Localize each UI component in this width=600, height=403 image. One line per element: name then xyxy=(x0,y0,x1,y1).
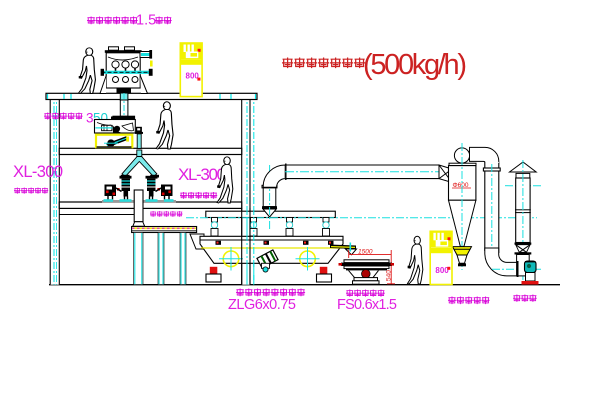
svg-text:800: 800 xyxy=(435,266,449,275)
svg-text:FS0.6x1.5: FS0.6x1.5 xyxy=(337,297,397,313)
svg-text:XL-300: XL-300 xyxy=(178,165,226,184)
svg-text:800: 800 xyxy=(186,72,200,81)
svg-text:1.5: 1.5 xyxy=(136,13,156,29)
svg-text:1500: 1500 xyxy=(358,249,373,256)
svg-text:XL-300: XL-300 xyxy=(13,163,63,181)
svg-text:540: 540 xyxy=(386,270,393,281)
svg-text:(500kg/h): (500kg/h) xyxy=(363,49,467,81)
svg-text:ZLG6x0.75: ZLG6x0.75 xyxy=(228,297,296,313)
